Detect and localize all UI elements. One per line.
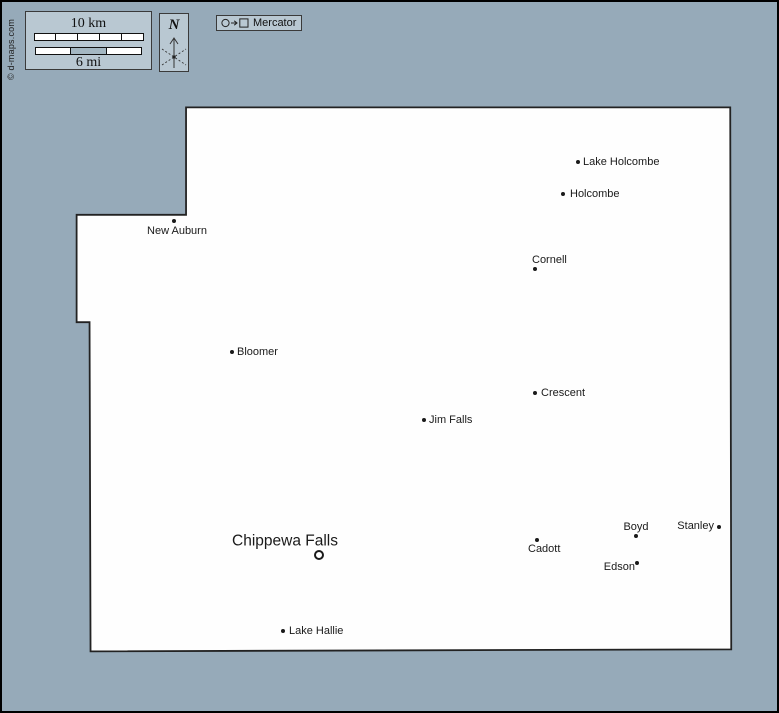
scale-legend: 10 km 6 mi bbox=[25, 11, 152, 70]
north-indicator: N bbox=[159, 13, 189, 72]
city-label: Crescent bbox=[541, 387, 585, 399]
city-dot bbox=[533, 391, 537, 395]
city-dot bbox=[172, 219, 176, 223]
city-dot bbox=[422, 418, 426, 422]
city-dot bbox=[634, 534, 638, 538]
city-label: New Auburn bbox=[147, 225, 207, 237]
scale-bar-segment bbox=[107, 48, 141, 54]
city-layer: Lake HolcombeHolcombeCornellNew AuburnBl… bbox=[2, 2, 777, 711]
city-dot bbox=[535, 538, 539, 542]
city-label: Edson bbox=[604, 561, 635, 573]
north-label: N bbox=[160, 14, 188, 34]
county-seat-marker bbox=[314, 550, 324, 560]
map-canvas: Lake HolcombeHolcombeCornellNew AuburnBl… bbox=[0, 0, 779, 713]
city-dot bbox=[717, 525, 721, 529]
scale-bar-km bbox=[34, 33, 144, 41]
projection-icon bbox=[221, 18, 249, 28]
city-dot bbox=[635, 561, 639, 565]
city-dot bbox=[281, 629, 285, 633]
copyright-credit: © d-maps.com bbox=[6, 19, 16, 80]
city-label: Boyd bbox=[623, 521, 648, 533]
scale-mi-label: 6 mi bbox=[76, 55, 101, 69]
city-dot bbox=[533, 267, 537, 271]
city-label: Cornell bbox=[532, 254, 567, 266]
city-label: Jim Falls bbox=[429, 414, 472, 426]
scale-bar-segment bbox=[71, 48, 106, 54]
scale-km-label: 10 km bbox=[71, 12, 106, 33]
city-label: Holcombe bbox=[570, 188, 620, 200]
city-label: Bloomer bbox=[237, 346, 278, 358]
scale-bar-segment bbox=[35, 34, 57, 40]
scale-bar-segment bbox=[36, 48, 71, 54]
scale-bar-segment bbox=[78, 34, 100, 40]
city-dot bbox=[576, 160, 580, 164]
city-label: Lake Holcombe bbox=[583, 156, 659, 168]
city-label: Stanley bbox=[677, 520, 714, 532]
city-label: Lake Hallie bbox=[289, 625, 343, 637]
city-dot bbox=[561, 192, 565, 196]
city-label: Chippewa Falls bbox=[232, 533, 338, 550]
scale-bar-segment bbox=[122, 34, 143, 40]
projection-badge: Mercator bbox=[216, 15, 302, 31]
city-dot bbox=[230, 350, 234, 354]
projection-label: Mercator bbox=[253, 16, 296, 30]
scale-bar-segment bbox=[56, 34, 78, 40]
scale-bar-segment bbox=[100, 34, 122, 40]
compass-icon bbox=[160, 34, 188, 70]
city-label: Cadott bbox=[528, 543, 560, 555]
scale-bar-mi bbox=[35, 47, 142, 55]
